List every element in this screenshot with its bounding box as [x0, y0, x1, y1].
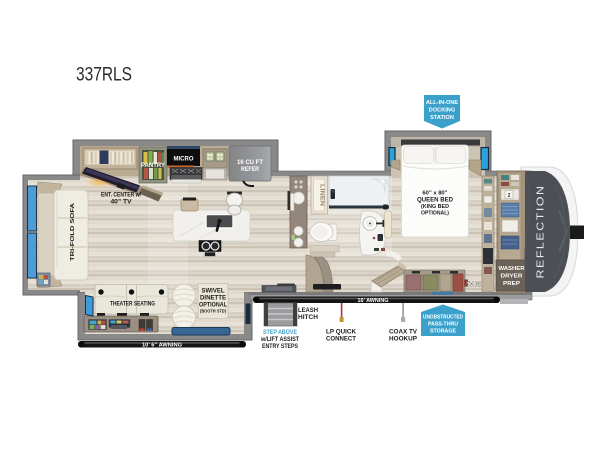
svg-text:LP QUICK: LP QUICK	[326, 330, 357, 336]
svg-text:(BOOTH STD): (BOOTH STD)	[200, 309, 226, 314]
svg-text:LINEN: LINEN	[319, 184, 325, 207]
svg-text:16’ AWNING: 16’ AWNING	[358, 298, 389, 304]
svg-text:PANTRY: PANTRY	[141, 163, 165, 169]
svg-text:DRYER: DRYER	[501, 274, 524, 280]
svg-text:16 CU FT: 16 CU FT	[237, 160, 263, 166]
svg-text:CONNECT: CONNECT	[326, 337, 356, 343]
svg-text:REFLECTION: REFLECTION	[536, 185, 547, 279]
svg-text:OPTIONAL): OPTIONAL)	[421, 211, 449, 217]
svg-text:TRI-FOLD SOFA: TRI-FOLD SOFA	[70, 202, 76, 261]
svg-text:SWIVEL: SWIVEL	[202, 289, 225, 295]
svg-text:PREP: PREP	[503, 281, 520, 287]
svg-text:DINETTE: DINETTE	[200, 296, 226, 302]
svg-text:ENT. CENTER w/: ENT. CENTER w/	[101, 192, 141, 199]
svg-text:COAX TV: COAX TV	[389, 330, 417, 336]
svg-text:ALL-IN-ONE: ALL-IN-ONE	[426, 100, 459, 106]
svg-text:PASS-THRU: PASS-THRU	[428, 322, 458, 328]
svg-text:QUEEN BED: QUEEN BED	[417, 197, 454, 204]
svg-text:STATION: STATION	[430, 115, 454, 121]
svg-text:w/LIFT ASSIST: w/LIFT ASSIST	[260, 337, 299, 343]
svg-text:2: 2	[508, 193, 511, 199]
svg-text:337RLS: 337RLS	[76, 64, 132, 86]
svg-text:STORAGE: STORAGE	[430, 329, 457, 335]
svg-text:LEASH: LEASH	[298, 308, 318, 314]
svg-text:(KING BED: (KING BED	[421, 204, 449, 210]
svg-text:10’ 6” AWNING: 10’ 6” AWNING	[142, 343, 182, 349]
svg-text:DOCKING: DOCKING	[429, 108, 455, 114]
svg-text:40” TV: 40” TV	[111, 199, 133, 206]
svg-text:ENTRY STEPS: ENTRY STEPS	[262, 344, 298, 350]
svg-text:UNOBSTRUCTED: UNOBSTRUCTED	[423, 315, 463, 321]
svg-text:HITCH: HITCH	[298, 315, 318, 321]
svg-text:STEP ABOVE: STEP ABOVE	[263, 330, 297, 336]
svg-text:REFER: REFER	[241, 167, 260, 173]
svg-text:WASHER: WASHER	[499, 266, 526, 272]
svg-text:THEATER SEATING: THEATER SEATING	[110, 301, 155, 308]
svg-text:MICRO: MICRO	[174, 157, 194, 163]
svg-text:HOOKUP: HOOKUP	[389, 337, 417, 343]
